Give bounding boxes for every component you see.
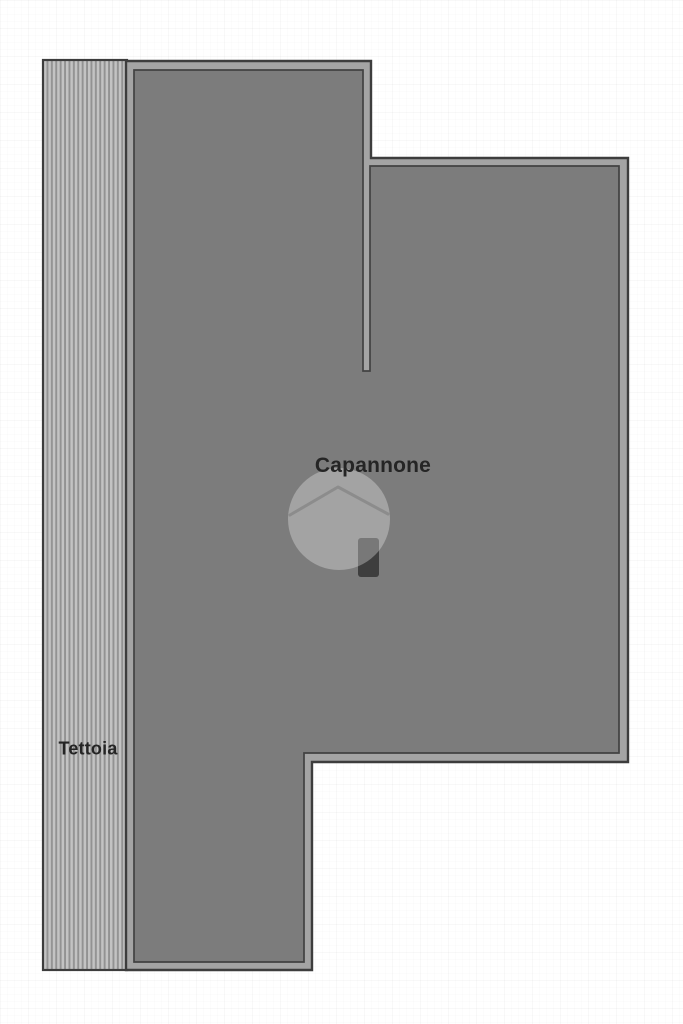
tettoia-canopy-area xyxy=(43,60,127,970)
floor-plan-drawing xyxy=(0,0,683,1024)
floor-plan-background: Capannone Tettoia xyxy=(0,0,683,1024)
watermark-circle xyxy=(288,468,390,570)
house-circle-watermark-icon xyxy=(288,468,390,570)
capannone-label: Capannone xyxy=(315,454,431,478)
tettoia-label: Tettoia xyxy=(58,739,117,760)
